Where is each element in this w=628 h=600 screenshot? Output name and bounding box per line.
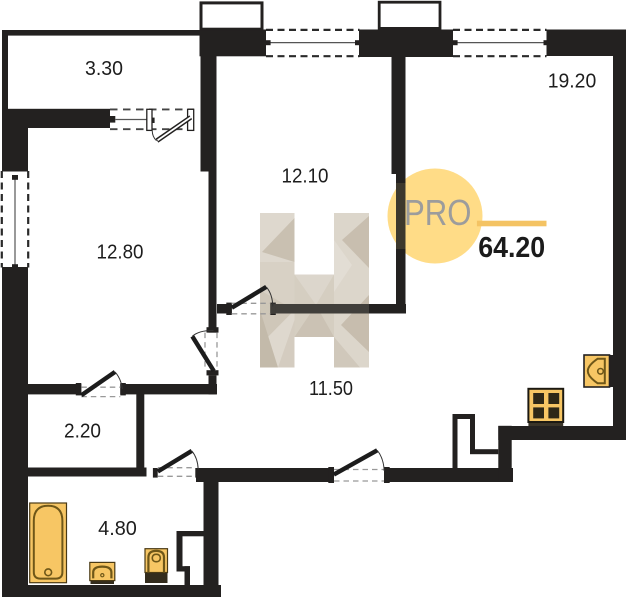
svg-text:19.20: 19.20	[548, 70, 597, 93]
svg-text:4.80: 4.80	[98, 517, 137, 540]
svg-text:12.80: 12.80	[97, 241, 144, 264]
svg-text:64.20: 64.20	[478, 232, 545, 264]
svg-text:12.10: 12.10	[282, 165, 329, 188]
svg-text:3.30: 3.30	[85, 57, 123, 80]
svg-text:PRO: PRO	[404, 192, 472, 233]
svg-text:11.50: 11.50	[309, 377, 353, 400]
svg-text:2.20: 2.20	[64, 420, 101, 443]
